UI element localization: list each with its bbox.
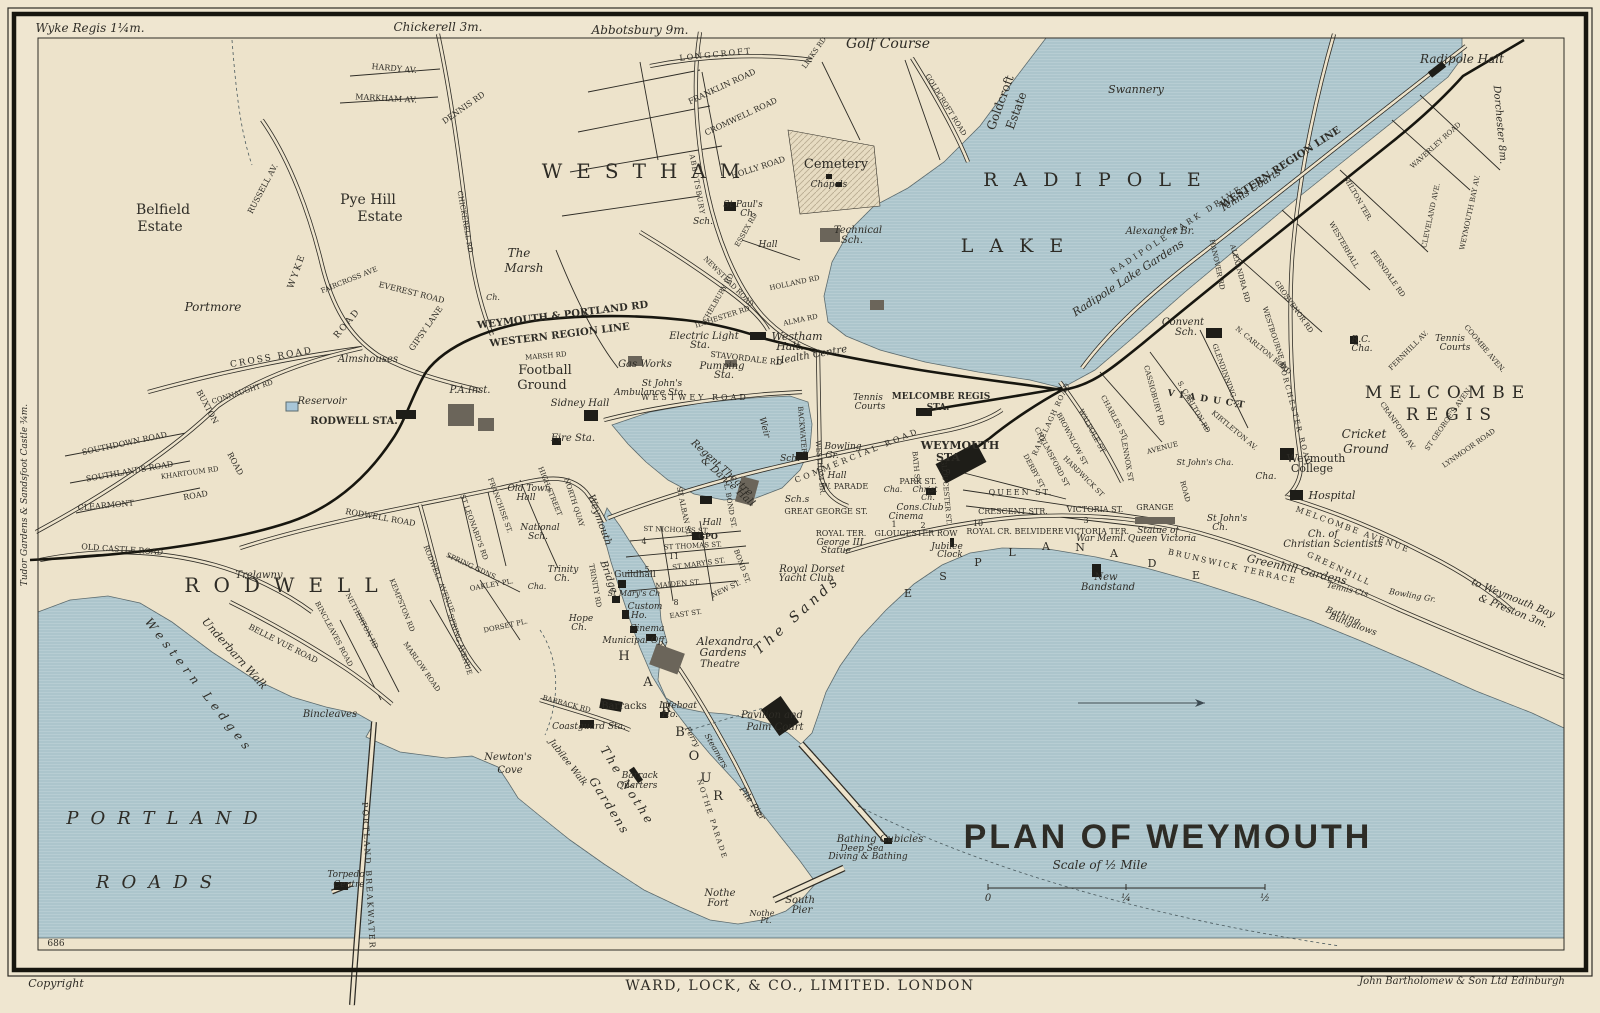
map-label: Hospital	[1308, 489, 1356, 502]
map-label: 5	[644, 565, 649, 574]
map-label: Sch.	[1175, 327, 1197, 338]
map-label: P	[974, 556, 982, 569]
map-label: Belfield	[136, 202, 190, 218]
map-label: GRANGE	[1136, 503, 1174, 512]
map-label: RODWELL	[184, 573, 391, 597]
map-label: PORTLAND	[65, 808, 269, 829]
map-label: QUEEN ST.	[989, 488, 1054, 497]
map-label: Courts	[855, 402, 886, 412]
map-label: Courts	[1440, 343, 1471, 353]
map-label: STA.	[927, 403, 950, 413]
map-label: MELCOMBE REGIS	[892, 392, 990, 402]
map-label: W. PARADE	[822, 482, 869, 491]
map-label: Hall	[516, 493, 536, 503]
map-label: GREAT GEORGE ST.	[784, 507, 867, 516]
building-block	[826, 174, 832, 179]
map-label: Chapels	[811, 180, 848, 190]
map-label: B	[675, 725, 685, 740]
map-label: Estate	[357, 209, 402, 225]
map-label: Ho.	[630, 611, 647, 621]
map-label: ROYAL CR. BELVIDERE	[966, 527, 1063, 536]
map-label: Pye Hill	[340, 192, 396, 208]
map-label: Portmore	[184, 300, 242, 314]
map-label: Radipole Halt	[1419, 52, 1504, 66]
map-label: RADIPOLE	[983, 169, 1217, 191]
map-label: Ch.	[1212, 523, 1228, 533]
map-label: Clock	[937, 550, 963, 560]
map-label: Cinema	[630, 624, 665, 634]
map-label: Sta.	[690, 340, 710, 351]
building-block	[618, 580, 626, 588]
map-label: R	[713, 789, 724, 804]
map-label: Guildhall	[614, 570, 656, 580]
map-label: Bincleaves	[302, 709, 357, 720]
map-label: Barracks	[601, 701, 647, 712]
map-label: Christian Scientists	[1283, 539, 1383, 550]
map-label: Hall	[827, 471, 847, 481]
map-label: 9	[945, 468, 950, 477]
map-label: A	[1041, 540, 1051, 553]
map-label: P.A.Inst.	[448, 385, 490, 396]
map-label: Marsh	[503, 261, 543, 275]
map-label: Pier	[791, 905, 814, 916]
map-label: Trelawny	[235, 570, 283, 581]
map-label: John Bartholomew & Son Ltd Edinburgh	[1357, 976, 1565, 987]
map-label: Coastguard Sta.	[552, 722, 626, 732]
map-label: Ground	[1343, 442, 1389, 456]
map-label: A	[642, 675, 653, 690]
map-label: VICTORIA ST.	[1066, 505, 1124, 514]
map-label: Estate	[137, 219, 182, 235]
map-label: Ch.	[921, 493, 935, 502]
map-label: Halt.	[775, 340, 804, 353]
building-block	[1135, 517, 1175, 524]
map-label: Almshouses	[337, 354, 398, 365]
map-label: Sch.	[528, 532, 548, 542]
building-block	[478, 418, 494, 431]
map-label: VICTORIA TER.	[1064, 527, 1129, 536]
map-label: Yacht Club	[779, 573, 834, 584]
map-label: 1	[891, 520, 896, 529]
map-label: Tudor Gardens & Sandsfoot Castle ¾m.	[19, 404, 30, 586]
map-label: Centre	[333, 880, 364, 890]
map-label: 0	[985, 893, 992, 904]
map-label: PLAN OF WEYMOUTH	[964, 818, 1373, 856]
map-label: Sidney Hall	[551, 398, 610, 409]
map-label: Abbotsbury 9m.	[591, 23, 689, 37]
map-label: RODWELL STA.	[310, 416, 397, 427]
map-label: Pt.	[759, 916, 771, 925]
building-block	[870, 300, 884, 310]
map-label: 8	[673, 598, 678, 607]
map-label: Cha.	[1352, 344, 1373, 354]
map-label: Theatre	[700, 659, 740, 670]
map-label: The	[508, 246, 531, 260]
map-label: Cove	[497, 765, 522, 776]
building-block	[584, 410, 598, 421]
map-label: H	[618, 649, 629, 664]
map-label: Chickerell 3m.	[394, 20, 483, 34]
map-label: 686	[47, 939, 64, 949]
map-label: Ch.	[554, 574, 570, 584]
map-label: E	[1192, 569, 1200, 582]
map-label: Sch.	[693, 217, 713, 227]
map-label: Sch.	[780, 454, 800, 464]
map-label: ROYAL TER.	[816, 529, 867, 538]
map-label: ROADS	[95, 872, 224, 893]
map-label: Fire Sta.	[550, 433, 595, 444]
map-label: Sch.	[841, 235, 863, 246]
map-label: GLOUCESTER ROW	[875, 529, 959, 538]
building-block	[1290, 490, 1303, 500]
map-label: Diving & Bathing	[827, 852, 907, 862]
map-label: Sch.s	[785, 495, 810, 505]
map-label: Ho.	[661, 710, 678, 720]
map-label: Cemetery	[804, 157, 869, 172]
map-label: Fort	[706, 898, 729, 909]
map-label: Ground	[517, 378, 567, 393]
map-label: Statue	[821, 546, 851, 556]
map-label: A	[1109, 547, 1119, 560]
map-label: 2	[920, 521, 925, 530]
map-label: St John's Cha.	[1177, 458, 1234, 467]
map-label: Torpedo	[327, 870, 365, 880]
map-label: Wyke Regis 1¼m.	[35, 21, 144, 35]
map-label: E	[904, 587, 912, 600]
map-label: CRESCENT STR.	[978, 507, 1048, 516]
map-label: WARD, LOCK, & CO., LIMITED. LONDON	[625, 978, 974, 994]
building-block	[448, 404, 474, 426]
map-label: Pavilion and	[740, 710, 803, 721]
map-label: Cha.	[528, 582, 547, 591]
map-label: Gas Works	[618, 359, 672, 370]
map-label: Swannery	[1108, 83, 1164, 96]
map-label: Gardens	[700, 646, 747, 659]
map-label: WESTWEY ROAD	[641, 393, 749, 402]
map-label: D	[1148, 557, 1157, 570]
map-label: Cha.	[884, 485, 903, 494]
map-label: O	[689, 749, 700, 764]
map-label: Cricket	[1342, 427, 1387, 441]
map-label: Palm Court	[745, 722, 804, 733]
map-label: Hall	[758, 240, 778, 250]
map-label: Cha.	[1256, 472, 1277, 482]
map-label: Copyright	[28, 977, 84, 990]
map-label: Newton's	[483, 752, 532, 763]
building-block	[1206, 328, 1222, 338]
map-label: ¼	[1121, 893, 1131, 904]
map-label: S	[939, 570, 947, 583]
map-label: Football	[518, 363, 572, 378]
map-label: L	[1008, 546, 1016, 559]
map-label: 11	[669, 552, 679, 561]
map-label: Queen Victoria	[1128, 534, 1196, 544]
building-block	[700, 496, 712, 504]
map-label: Ch.	[571, 623, 587, 633]
map-label: MELCOMBE	[1365, 383, 1531, 403]
map-label: 3	[1083, 516, 1088, 525]
map-label: Municipal Off.	[601, 636, 667, 646]
map-label: Sta.	[714, 370, 734, 381]
building-block	[286, 402, 298, 411]
map-page: Wyke Regis 1¼m.Chickerell 3m.Abbotsbury …	[0, 0, 1600, 1013]
map-label: Scale of ½ Mile	[1053, 858, 1148, 872]
map-label: LAKE	[961, 235, 1079, 257]
map-label: Ch.	[486, 293, 500, 302]
map-label: WESTHAM	[542, 159, 755, 183]
map-label: Reservoir	[297, 396, 348, 407]
building-block	[750, 332, 766, 340]
map-label: Bandstand	[1080, 582, 1135, 593]
building-block	[396, 410, 416, 419]
map-label: Golf Course	[846, 36, 930, 52]
map-label: 4	[641, 537, 646, 546]
map-label: 10	[973, 519, 983, 528]
map-canvas: Wyke Regis 1¼m.Chickerell 3m.Abbotsbury …	[0, 0, 1600, 1013]
map-label: ½	[1260, 893, 1270, 904]
